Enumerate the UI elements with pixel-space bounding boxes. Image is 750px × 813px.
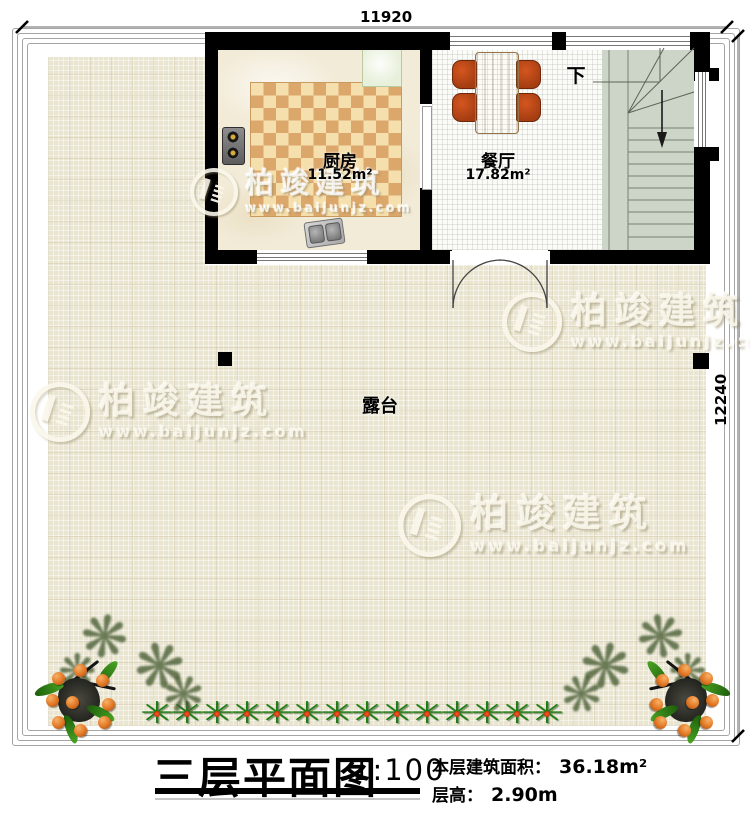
watermark-brand: 柏竣建筑	[470, 495, 690, 535]
window	[257, 250, 367, 264]
watermark-url: www.baijunjz.com	[571, 333, 750, 351]
corner-plant-left: ❋ ❋ ❋ ❋	[42, 612, 217, 752]
staircase	[602, 50, 694, 250]
berry-icon	[52, 716, 65, 729]
sink-basin	[307, 224, 324, 244]
berry-icon	[656, 674, 669, 687]
berry-icon	[52, 672, 65, 685]
wall	[552, 32, 566, 50]
window	[450, 32, 552, 50]
watermark-logo-icon	[30, 382, 90, 442]
corner-plant-right: ❋ ❋ ❋ ❋	[548, 612, 723, 752]
stairs-down-label: 下	[566, 61, 585, 88]
kitchen-counter-window	[362, 48, 402, 87]
berry-icon	[66, 696, 79, 709]
berry-icon	[74, 664, 87, 677]
watermark: 柏竣建筑 www.baijunjz.com	[190, 168, 413, 216]
watermark: 柏竣建筑 www.baijunjz.com	[398, 494, 690, 557]
floor-height-value: 2.90m	[491, 784, 558, 806]
watermark-brand: 柏竣建筑	[571, 293, 750, 331]
wall	[205, 32, 218, 254]
dining-table	[475, 52, 519, 134]
column	[693, 353, 709, 369]
watermark-logo-icon	[398, 494, 461, 557]
terrace-label: 露台	[362, 392, 398, 418]
floor-height-label: 层高：	[432, 781, 483, 806]
berry-icon	[96, 674, 109, 687]
terrace-door-opening	[450, 251, 550, 264]
dimension-width: 11920	[360, 8, 412, 26]
watermark-url: www.baijunjz.com	[470, 537, 690, 556]
berry-icon	[102, 698, 115, 711]
title-underline	[155, 788, 420, 794]
floor-area-value: 36.18m²	[559, 756, 647, 778]
wall	[367, 250, 452, 264]
berry-icon	[98, 716, 111, 729]
sink-icon	[303, 217, 345, 248]
berry-icon	[700, 716, 713, 729]
window	[695, 72, 709, 147]
berry-icon	[706, 694, 719, 707]
wall	[694, 32, 710, 72]
wall	[548, 250, 710, 264]
berry-icon	[46, 694, 59, 707]
chair	[516, 93, 541, 122]
chair	[516, 60, 541, 89]
wall	[694, 147, 710, 264]
berry-icon	[700, 672, 713, 685]
watermark-brand: 柏竣建筑	[99, 383, 308, 421]
berry-icon	[686, 696, 699, 709]
berry-icon	[74, 724, 87, 737]
wall	[205, 32, 450, 50]
chair	[452, 60, 477, 89]
wall	[420, 188, 432, 252]
watermark-logo-icon	[502, 292, 562, 352]
chair	[452, 93, 477, 122]
watermark: 柏竣建筑 www.baijunjz.com	[502, 292, 750, 352]
window	[566, 32, 690, 50]
title-notes: 本层建筑面积： 36.18m² 层高： 2.90m	[432, 753, 647, 809]
watermark-url: www.baijunjz.com	[99, 423, 308, 441]
sliding-door	[422, 106, 432, 190]
burner-icon	[227, 131, 239, 143]
sink-basin	[324, 222, 341, 242]
dimension-height: 12240	[712, 374, 730, 426]
page-title: 三层平面图	[153, 744, 378, 806]
wall	[420, 46, 432, 104]
watermark-logo-icon	[190, 168, 238, 216]
burner-icon	[227, 147, 239, 159]
column	[218, 352, 232, 366]
watermark: 柏竣建筑 www.baijunjz.com	[30, 382, 308, 442]
floor-plan: 11920 12240 柏竣建筑 www.baijunjz.com 柏竣建筑 w…	[0, 0, 750, 813]
dining-area-label: 17.82m²	[465, 167, 530, 183]
floor-area-label: 本层建筑面积：	[432, 753, 551, 778]
wall	[205, 250, 257, 264]
berry-icon	[678, 724, 691, 737]
berry-icon	[650, 698, 663, 711]
berry-icon	[678, 664, 691, 677]
watermark-url: www.baijunjz.com	[245, 201, 412, 215]
title-underline-thin	[155, 798, 420, 800]
kitchen-area-label: 11.52m²	[307, 167, 372, 183]
berry-icon	[654, 716, 667, 729]
stove-icon	[222, 127, 245, 165]
